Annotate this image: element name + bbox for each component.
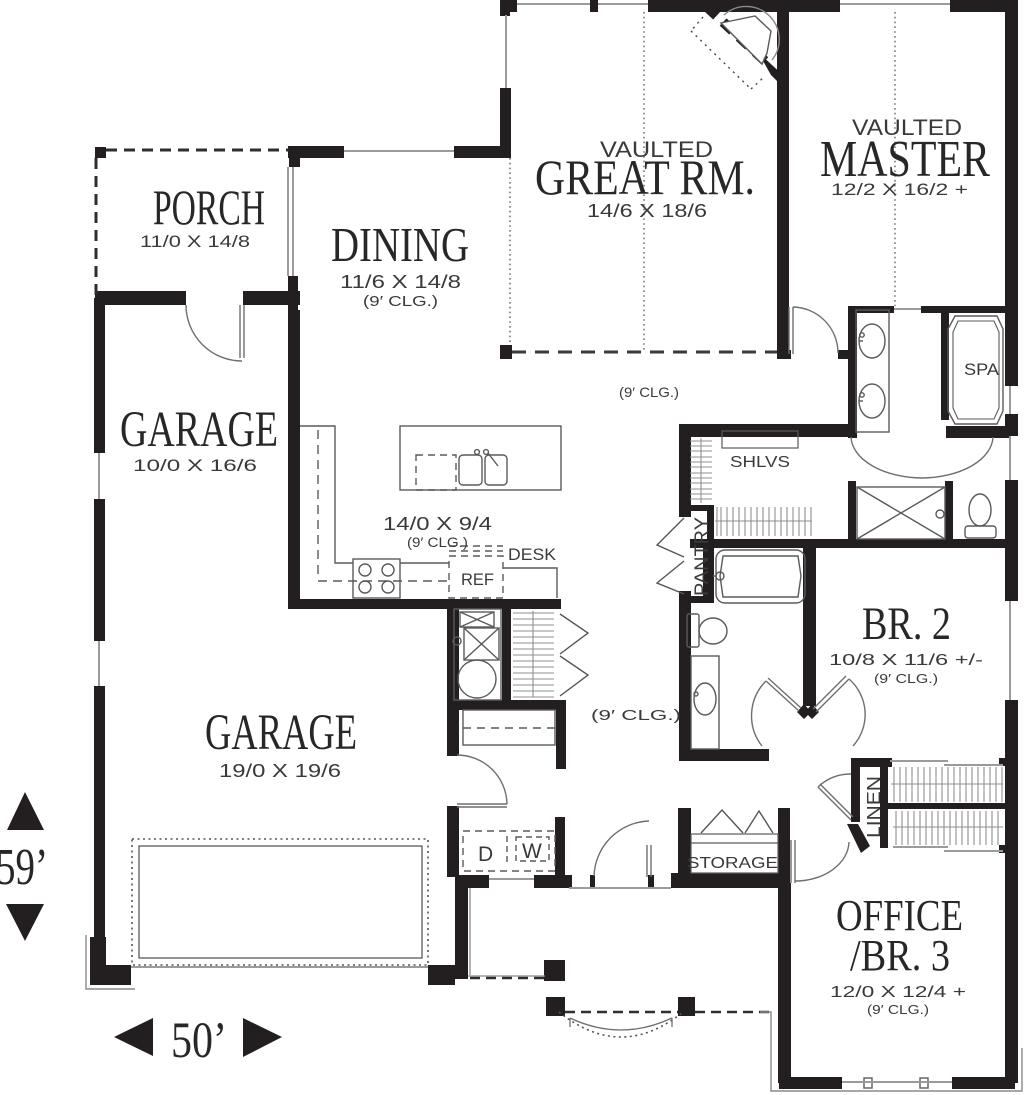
svg-text:(9′ CLG.): (9′ CLG.): [867, 1002, 929, 1017]
svg-text:PORCH: PORCH: [153, 179, 265, 235]
svg-text:(9′ CLG.): (9′ CLG.): [363, 293, 438, 310]
svg-text:(9′ CLG.): (9′ CLG.): [407, 534, 468, 550]
svg-text:DINING: DINING: [331, 217, 469, 272]
svg-text:(9′ CLG.): (9′ CLG.): [591, 707, 681, 724]
svg-text:REF: REF: [461, 570, 494, 589]
svg-text:DESK: DESK: [508, 545, 557, 564]
svg-text:GARAGE: GARAGE: [205, 705, 357, 761]
svg-text:SHLVS: SHLVS: [730, 454, 790, 471]
svg-text:BR. 2: BR. 2: [862, 598, 951, 650]
svg-text:14/0 X 9/4: 14/0 X 9/4: [383, 514, 492, 534]
svg-text:11/6 X 14/8: 11/6 X 14/8: [340, 272, 461, 292]
svg-text:12/2 X 16/2 +: 12/2 X 16/2 +: [831, 180, 968, 199]
svg-text:19/0 X 19/6: 19/0 X 19/6: [219, 761, 341, 781]
svg-text:10/0 X 16/6: 10/0 X 16/6: [133, 456, 257, 475]
svg-text:10/8 X 11/6 +/-: 10/8 X 11/6 +/-: [829, 652, 983, 669]
svg-text:59’: 59’: [0, 839, 48, 896]
svg-text:PANTRY: PANTRY: [692, 517, 713, 596]
svg-text:12/0 X 12/4 +: 12/0 X 12/4 +: [830, 984, 966, 1001]
svg-text:14/6 X 18/6: 14/6 X 18/6: [587, 201, 707, 221]
svg-text:STORAGE: STORAGE: [687, 855, 778, 872]
svg-text:(9′ CLG.): (9′ CLG.): [874, 671, 938, 686]
svg-text:11/0 X 14/8: 11/0 X 14/8: [140, 232, 250, 251]
svg-text:LINEN: LINEN: [864, 776, 884, 838]
svg-text:D: D: [478, 843, 493, 866]
svg-text:W: W: [522, 840, 542, 863]
svg-text:(9′ CLG.): (9′ CLG.): [619, 384, 679, 400]
svg-text:SPA: SPA: [964, 360, 1000, 379]
svg-text:/BR. 3: /BR. 3: [850, 931, 950, 980]
svg-text:GARAGE: GARAGE: [120, 402, 278, 458]
svg-text:50’: 50’: [171, 1013, 227, 1069]
svg-text:GREAT RM.: GREAT RM.: [535, 149, 755, 205]
